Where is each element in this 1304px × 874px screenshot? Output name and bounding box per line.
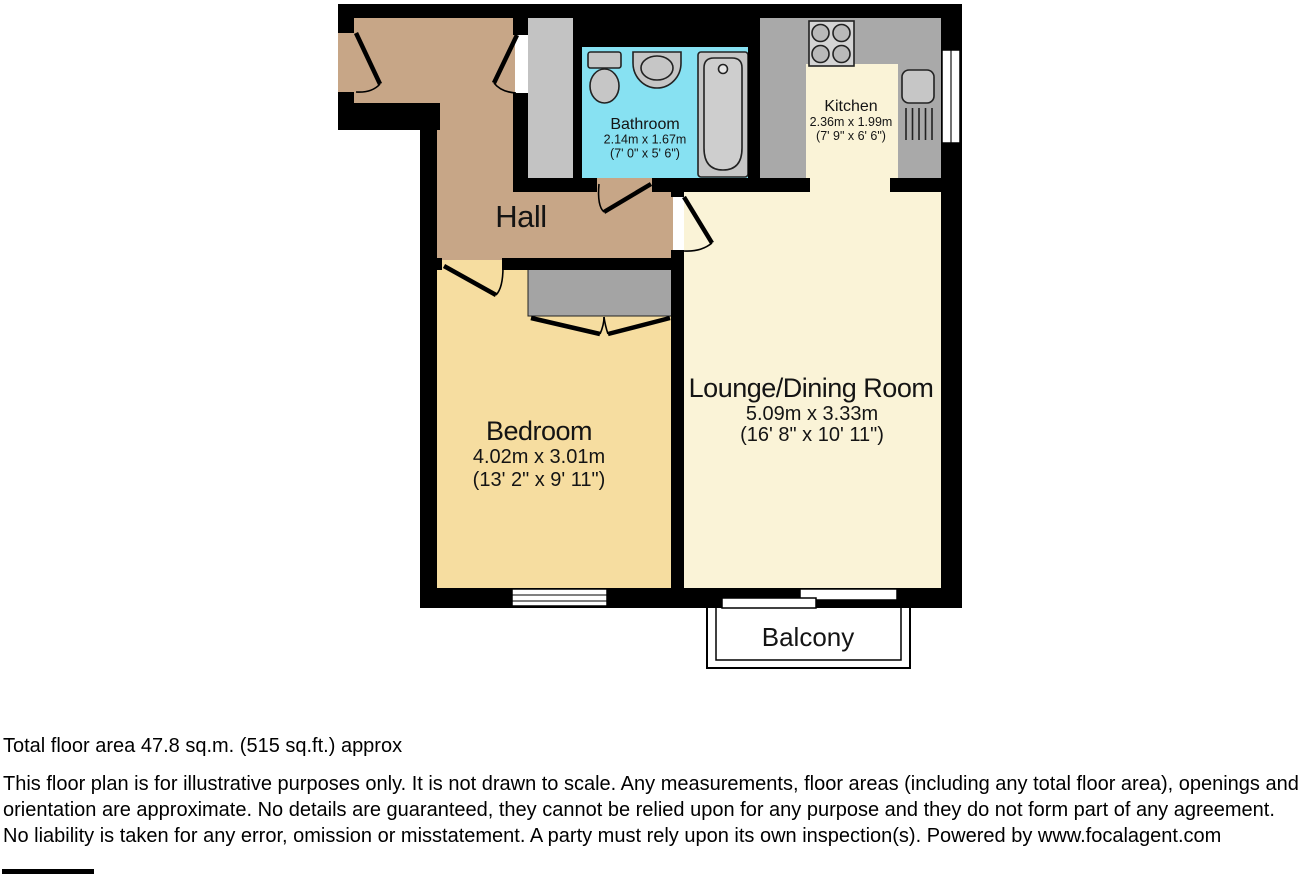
balcony-label: Balcony: [762, 622, 855, 652]
wall-segment: [502, 258, 673, 270]
lounge-dims-metric: 5.09m x 3.33m: [746, 403, 878, 425]
bedroom-window: [512, 589, 607, 606]
wall-segment: [513, 178, 597, 192]
wall-segment: [513, 4, 528, 35]
wall-segment: [420, 103, 437, 606]
kitchen-label: Kitchen: [824, 98, 877, 115]
total-floor-area-text: Total floor area 47.8 sq.m. (515 sq.ft.)…: [3, 735, 402, 758]
wall-segment: [671, 178, 684, 197]
bedroom-label: Bedroom: [486, 416, 592, 446]
wall-segment: [890, 178, 962, 192]
floor-plan-page: Hall Bathroom 2.14m x 1.67m (7' 0" x 5' …: [0, 0, 1304, 874]
hob-icon: [809, 21, 854, 66]
lounge-dims-imperial: (16' 8" x 10' 11"): [740, 424, 884, 446]
bathroom-dims-imperial: (7' 0" x 5' 6"): [610, 147, 680, 161]
wall-segment: [671, 250, 684, 590]
wardrobe: [528, 266, 673, 316]
wall-segment: [573, 4, 760, 47]
bedroom-dims-metric: 4.02m x 3.01m: [473, 446, 605, 468]
wall-segment: [338, 92, 354, 118]
wall-segment: [437, 258, 442, 270]
hall-corridor-floor: [437, 103, 515, 183]
cupboard: [528, 18, 573, 178]
kitchen-window: [942, 50, 960, 143]
wall-segment: [748, 47, 760, 178]
kitchen-counter-left: [760, 16, 806, 178]
bottom-edge-line: [2, 869, 94, 874]
entrance-opening-floor: [338, 33, 354, 93]
toilet-icon: [588, 52, 621, 103]
disclaimer-text: This floor plan is for illustrative purp…: [3, 771, 1303, 849]
bedroom-dims-imperial: (13' 2" x 9' 11"): [473, 469, 606, 491]
floor-plan-drawing: Hall Bathroom 2.14m x 1.67m (7' 0" x 5' …: [0, 0, 1304, 690]
kitchen-dims-imperial: (7' 9" x 6' 6"): [816, 129, 886, 143]
wall-segment: [573, 47, 582, 178]
bathroom-dims-metric: 2.14m x 1.67m: [604, 133, 687, 147]
hall-label: Hall: [495, 199, 546, 234]
bathtub-drain: [719, 65, 728, 74]
lounge-label: Lounge/Dining Room: [689, 373, 934, 403]
bathtub-icon: [698, 52, 748, 177]
wall-segment: [338, 4, 354, 33]
hall-vestibule-floor: [353, 16, 515, 107]
bathroom-label: Bathroom: [610, 116, 679, 133]
wall-segment: [513, 93, 528, 178]
kitchen-dims-metric: 2.36m x 1.99m: [810, 115, 893, 129]
